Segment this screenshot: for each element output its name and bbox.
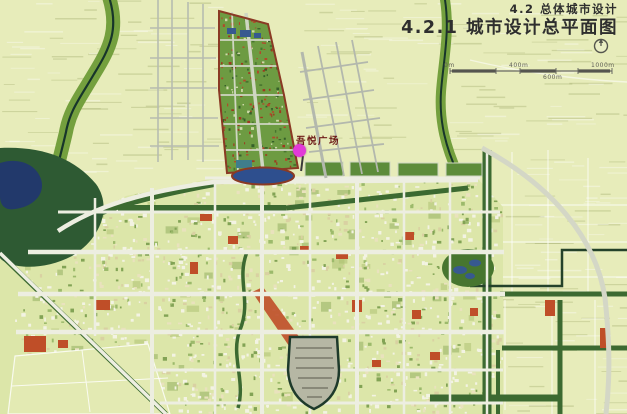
scale-label-600: 600m <box>543 74 562 81</box>
vacant-fields <box>8 344 170 414</box>
scale-label-1000: 1000m <box>591 62 615 69</box>
page-title: 4.2.1 城市设计总平面图 <box>401 17 618 39</box>
page-header: 4.2 总体城市设计 4.2.1 城市设计总平面图 <box>401 2 618 39</box>
plan-map-page: 4.2 总体城市设计 4.2.1 城市设计总平面图 吾悦广场 0m 400m 6… <box>0 0 627 414</box>
city-plan-map <box>0 0 627 414</box>
district-pool <box>236 160 252 168</box>
section-label: 4.2 总体城市设计 <box>401 2 618 17</box>
plaza-marker <box>293 144 306 157</box>
gateway-pond <box>232 168 294 185</box>
scale-label-400: 400m <box>509 62 528 69</box>
scale-label-0: 0m <box>444 62 455 69</box>
north-arrow-icon <box>595 39 608 53</box>
